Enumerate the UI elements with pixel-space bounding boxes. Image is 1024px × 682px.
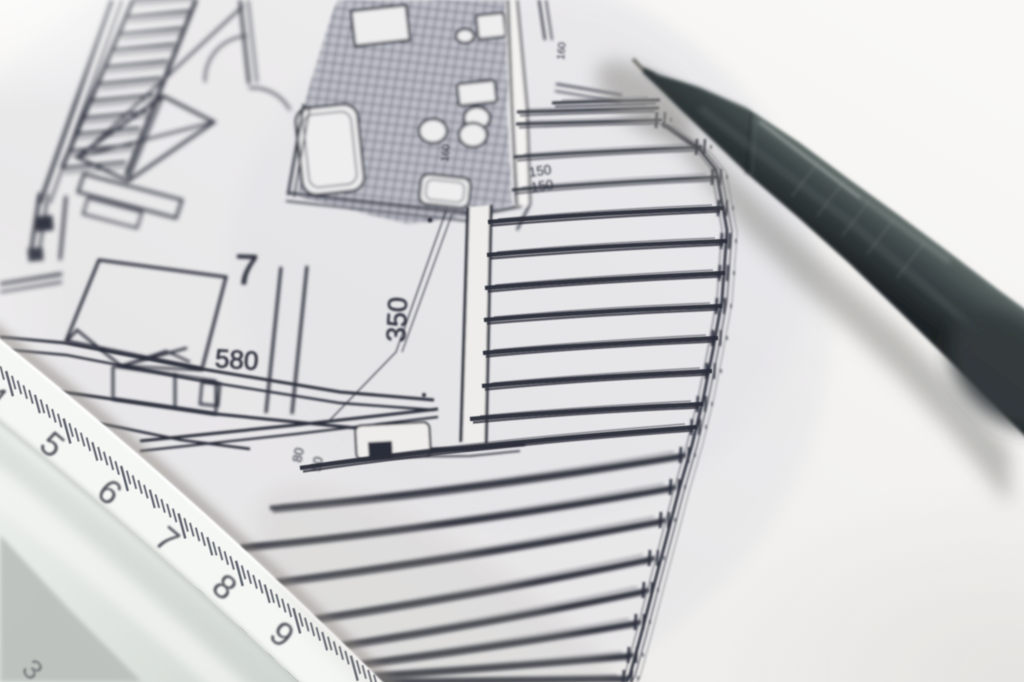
svg-text:160: 160 — [439, 144, 452, 163]
svg-text:7: 7 — [234, 246, 259, 294]
svg-text:580: 580 — [214, 343, 259, 376]
svg-text:80: 80 — [289, 446, 307, 463]
svg-text:160: 160 — [555, 42, 568, 61]
svg-text:350: 350 — [381, 296, 413, 343]
